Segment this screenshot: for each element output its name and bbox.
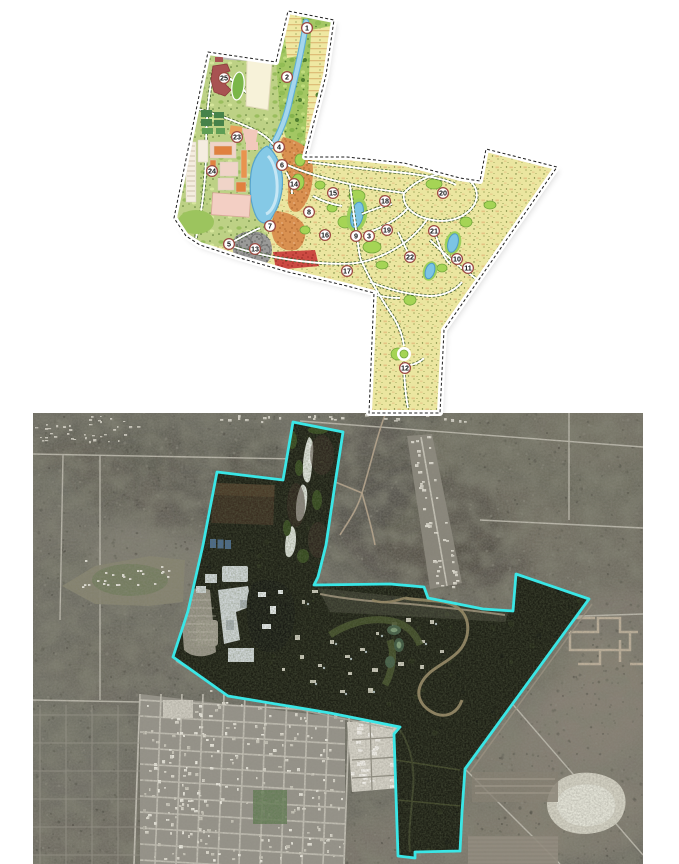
svg-text:16: 16 <box>321 231 329 240</box>
svg-text:1: 1 <box>305 24 309 33</box>
svg-text:21: 21 <box>430 227 438 236</box>
svg-text:19: 19 <box>383 226 391 235</box>
svg-text:13: 13 <box>251 245 259 254</box>
svg-text:3: 3 <box>367 232 371 241</box>
svg-text:2: 2 <box>285 73 289 82</box>
svg-text:17: 17 <box>343 267 351 276</box>
svg-text:25: 25 <box>220 74 228 83</box>
svg-text:5: 5 <box>227 240 231 249</box>
svg-text:10: 10 <box>453 255 461 264</box>
svg-text:20: 20 <box>439 189 447 198</box>
svg-text:12: 12 <box>401 364 409 373</box>
svg-text:9: 9 <box>354 232 358 241</box>
svg-text:18: 18 <box>381 197 389 206</box>
svg-text:24: 24 <box>208 167 216 176</box>
svg-text:7: 7 <box>268 222 272 231</box>
svg-text:23: 23 <box>233 133 241 142</box>
svg-text:8: 8 <box>307 208 311 217</box>
svg-text:6: 6 <box>280 161 284 170</box>
svg-text:11: 11 <box>464 264 472 273</box>
svg-text:14: 14 <box>290 180 298 189</box>
svg-text:15: 15 <box>329 189 337 198</box>
svg-text:22: 22 <box>406 253 414 262</box>
svg-text:4: 4 <box>277 143 281 152</box>
